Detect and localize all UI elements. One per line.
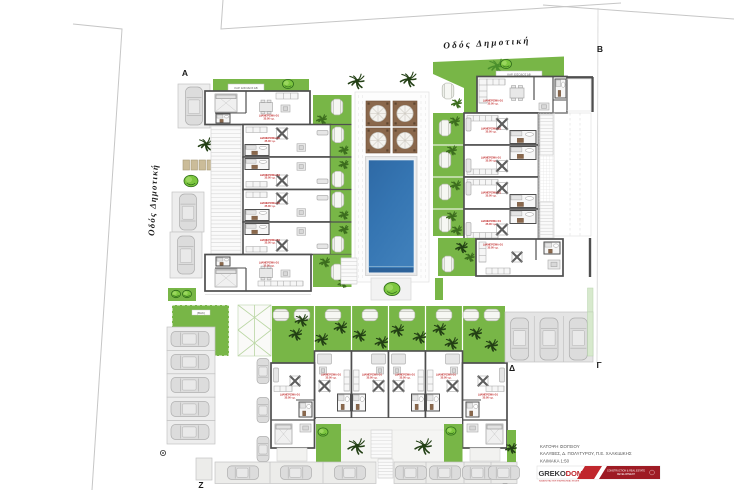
svg-text:35.00 τ.μ.: 35.00 τ.μ.: [285, 396, 296, 399]
svg-text:35.00 τ.μ.: 35.00 τ.μ.: [265, 205, 276, 208]
svg-text:ΚΑΡ. ΕΙΣΟΔΟΣ ΔΒ: ΚΑΡ. ΕΙΣΟΔΟΣ ΔΒ: [234, 86, 257, 90]
svg-text:35.00 τ.μ.: 35.00 τ.μ.: [488, 102, 499, 105]
svg-text:GREKODOM: GREKODOM: [539, 469, 583, 478]
svg-text:35.00 τ.μ.: 35.00 τ.μ.: [486, 159, 497, 162]
svg-text:35.00 τ.μ.: 35.00 τ.μ.: [400, 376, 411, 379]
svg-text:35.00 τ.μ.: 35.00 τ.μ.: [488, 246, 499, 249]
svg-text:Β: Β: [597, 44, 603, 54]
svg-text:ΚΑΤΟΨΗ ΙΣΟΓΕΙΟΥ: ΚΑΤΟΨΗ ΙΣΟΓΕΙΟΥ: [540, 444, 580, 449]
svg-text:35.00 τ.μ.: 35.00 τ.μ.: [441, 376, 452, 379]
svg-text:ΚΑΛΥΒΕΣ, Δ. ΠΟΛΥΓΥΡΟΥ, Π.Ε. ΧΑ: ΚΑΛΥΒΕΣ, Δ. ΠΟΛΥΓΥΡΟΥ, Π.Ε. ΧΑΛΚΙΔΙΚΗΣ: [540, 451, 632, 456]
svg-text:DEVELOPMENT: DEVELOPMENT: [617, 473, 636, 476]
svg-text:Α: Α: [182, 68, 188, 78]
svg-text:35.00 τ.μ.: 35.00 τ.μ.: [486, 223, 497, 226]
svg-text:35.00 τ.μ.: 35.00 τ.μ.: [486, 130, 497, 133]
svg-text:ΚΑΤΑΣΚΕΥΑΣΤΙΚΗ ΕΤΑΙΡΕΙΑ REAL E: ΚΑΤΑΣΚΕΥΑΣΤΙΚΗ ΕΤΑΙΡΕΙΑ REAL ESTATE: [539, 480, 580, 483]
svg-text:Δ: Δ: [509, 363, 515, 373]
svg-text:Ζ: Ζ: [198, 480, 203, 490]
svg-text:35.00 τ.μ.: 35.00 τ.μ.: [265, 140, 276, 143]
svg-text:35.00 τ.μ.: 35.00 τ.μ.: [326, 376, 337, 379]
svg-text:(ΒΑΚ): (ΒΑΚ): [197, 311, 205, 315]
svg-text:35.00 τ.μ.: 35.00 τ.μ.: [483, 396, 494, 399]
svg-text:35.00 τ.μ.: 35.00 τ.μ.: [264, 264, 275, 267]
svg-text:35.00 τ.μ.: 35.00 τ.μ.: [486, 194, 497, 197]
svg-text:ΚΛΙΜΑΚΑ 1:50: ΚΛΙΜΑΚΑ 1:50: [540, 459, 570, 464]
svg-text:Γ: Γ: [596, 360, 601, 370]
svg-text:35.00 τ.μ.: 35.00 τ.μ.: [367, 376, 378, 379]
svg-text:35.00 τ.μ.: 35.00 τ.μ.: [264, 117, 275, 120]
svg-text:35.00 τ.μ.: 35.00 τ.μ.: [265, 242, 276, 245]
svg-text:35.00 τ.μ.: 35.00 τ.μ.: [265, 177, 276, 180]
